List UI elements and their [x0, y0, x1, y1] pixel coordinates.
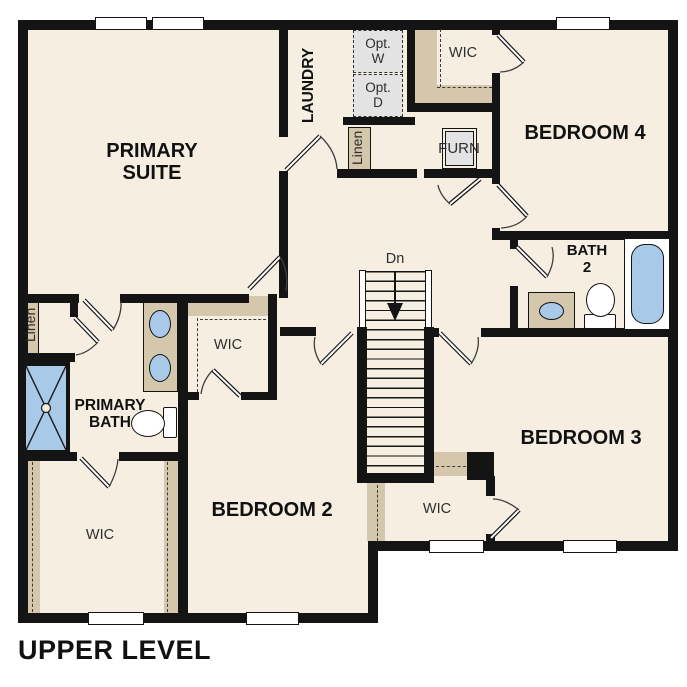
wall-segment — [241, 392, 277, 400]
wall-segment — [279, 171, 288, 298]
window — [246, 612, 299, 625]
wall-segment — [368, 541, 678, 551]
sink-icon — [149, 310, 171, 338]
optional-dryer-label: Opt. D — [365, 81, 391, 109]
wall-segment — [407, 24, 415, 112]
wall-segment — [424, 169, 493, 178]
wall-segment — [70, 294, 78, 317]
linen-hall-label: Linen — [350, 124, 365, 172]
plan-title: UPPER LEVEL — [18, 635, 211, 666]
wall-segment — [357, 473, 434, 483]
wic-primary-shelf-left — [26, 461, 40, 613]
laundry-label: LAUNDRY — [300, 38, 317, 133]
wall-segment — [268, 294, 277, 400]
wall-segment — [407, 103, 500, 112]
wall-chase-block — [467, 452, 494, 480]
shelf-dash — [200, 319, 266, 320]
primary-suite-label: PRIMARY SUITE — [62, 140, 242, 185]
toilet-bowl — [586, 283, 615, 317]
shelf-dash — [32, 462, 33, 612]
window — [563, 540, 617, 553]
wic-bedroom3-shelf-top — [434, 452, 467, 476]
optional-dryer-box: Opt. D — [353, 74, 403, 117]
window — [556, 17, 610, 30]
wall-segment — [368, 541, 378, 623]
bathtub — [631, 244, 664, 324]
linen-primary-label: Linen — [23, 300, 38, 350]
shelf-dash — [167, 462, 168, 612]
stair-center-line — [394, 272, 396, 306]
wall-segment — [510, 240, 518, 249]
wall-segment — [279, 24, 288, 137]
optional-washer-box: Opt. W — [353, 30, 403, 73]
bedroom3-label: BEDROOM 3 — [491, 427, 671, 449]
window — [429, 540, 484, 553]
floor-lower-left-section — [24, 545, 376, 618]
wic-bedroom3-shelf-left — [367, 483, 385, 541]
wall-segment — [357, 327, 367, 483]
primary-bath-label: PRIMARY BATH — [60, 397, 160, 432]
bath2-label: BATH 2 — [547, 243, 627, 277]
sink-icon — [149, 354, 171, 382]
stair-rail-left — [359, 270, 366, 331]
wic-primary-label: WIC — [70, 528, 130, 543]
stair-rail-right — [425, 270, 432, 331]
wall-segment — [486, 534, 495, 543]
wic-bedroom4-label: WIC — [433, 46, 493, 61]
wic-bedroom2-label: WIC — [198, 338, 258, 353]
sink-icon — [539, 302, 564, 320]
window — [95, 17, 147, 30]
window — [152, 17, 204, 30]
wall-segment — [424, 327, 434, 483]
wall-segment — [119, 452, 188, 461]
optional-washer-label: Opt. W — [365, 37, 391, 65]
furnace-label: FURN — [429, 141, 489, 157]
wall-segment — [280, 327, 316, 336]
window — [88, 612, 144, 625]
floor-plan: Opt. W Opt. D — [0, 0, 687, 687]
stair-down-arrow — [387, 303, 403, 321]
wall-segment — [337, 169, 417, 178]
wic-bedroom3-label: WIC — [407, 502, 467, 517]
bedroom2-label: BEDROOM 2 — [182, 499, 362, 521]
bedroom4-label: BEDROOM 4 — [495, 122, 675, 144]
shelf-dash — [377, 485, 378, 541]
wall-segment — [22, 353, 75, 362]
wall-segment — [492, 24, 500, 35]
toilet-tank — [163, 407, 177, 438]
stair-down-label: Dn — [375, 252, 415, 267]
shelf-dash — [437, 87, 492, 88]
floor-upper-section — [24, 24, 672, 546]
shelf-dash — [197, 318, 198, 392]
shelf-dash — [436, 466, 466, 467]
wall-segment — [18, 613, 378, 623]
